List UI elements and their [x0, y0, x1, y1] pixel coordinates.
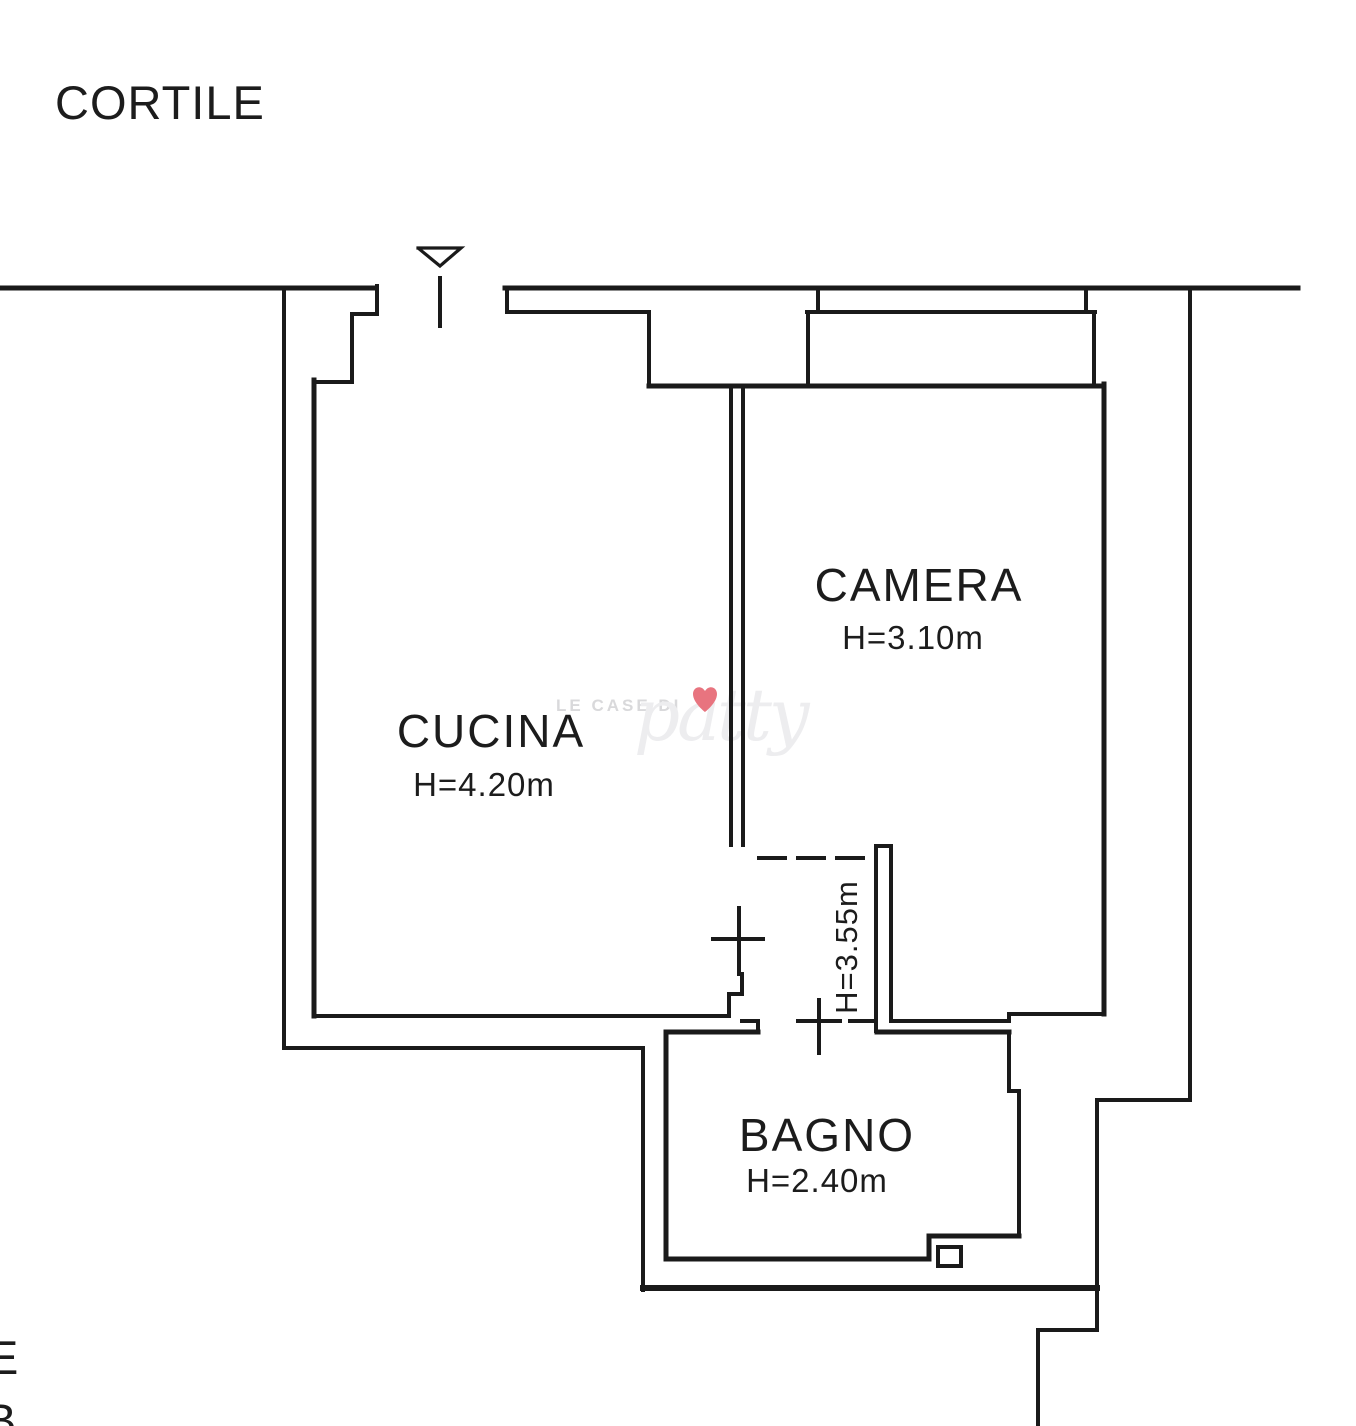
room-label-bagno: BAGNO — [739, 1109, 915, 1161]
room-height-corridoio: H=3.55m — [829, 880, 864, 1014]
watermark: LE CASE DI patty — [556, 673, 811, 757]
wall-camera-bottom — [891, 1014, 1104, 1021]
room-height-camera: H=3.10m — [842, 619, 984, 656]
window-bay-inner — [807, 312, 1095, 384]
edge-fragment-lower: B — [0, 1394, 16, 1426]
floor-plan: LE CASE DI patty — [0, 0, 1356, 1426]
floor-plan-svg: LE CASE DI patty — [0, 0, 1356, 1426]
walls — [0, 286, 1298, 1426]
courtyard-label: CORTILE — [55, 76, 265, 129]
room-label-cucina: CUCINA — [397, 705, 585, 757]
entrance-triangle-icon — [418, 248, 461, 266]
watermark-script: patty — [634, 673, 811, 757]
bagno-fixture — [938, 1247, 961, 1266]
labels: CORTILE CUCINA H=4.20m CAMERA H=3.10m BA… — [0, 76, 1023, 1426]
wall-bagno-bottom — [666, 1236, 1019, 1259]
wall-bagno-right — [1009, 1032, 1019, 1236]
room-height-cucina: H=4.20m — [413, 766, 555, 803]
door-cross-cucina — [713, 908, 763, 974]
wall-top-band — [507, 288, 649, 386]
room-label-camera: CAMERA — [815, 559, 1024, 611]
wall-outer-right — [1038, 290, 1190, 1426]
symbols — [418, 248, 874, 1053]
wall-cucina-bottom — [314, 974, 742, 1016]
room-height-bagno: H=2.40m — [746, 1162, 888, 1199]
wall-top-left-step — [314, 286, 377, 382]
edge-fragment-upper: E — [0, 1331, 18, 1384]
window-bay-outer — [818, 288, 1086, 312]
